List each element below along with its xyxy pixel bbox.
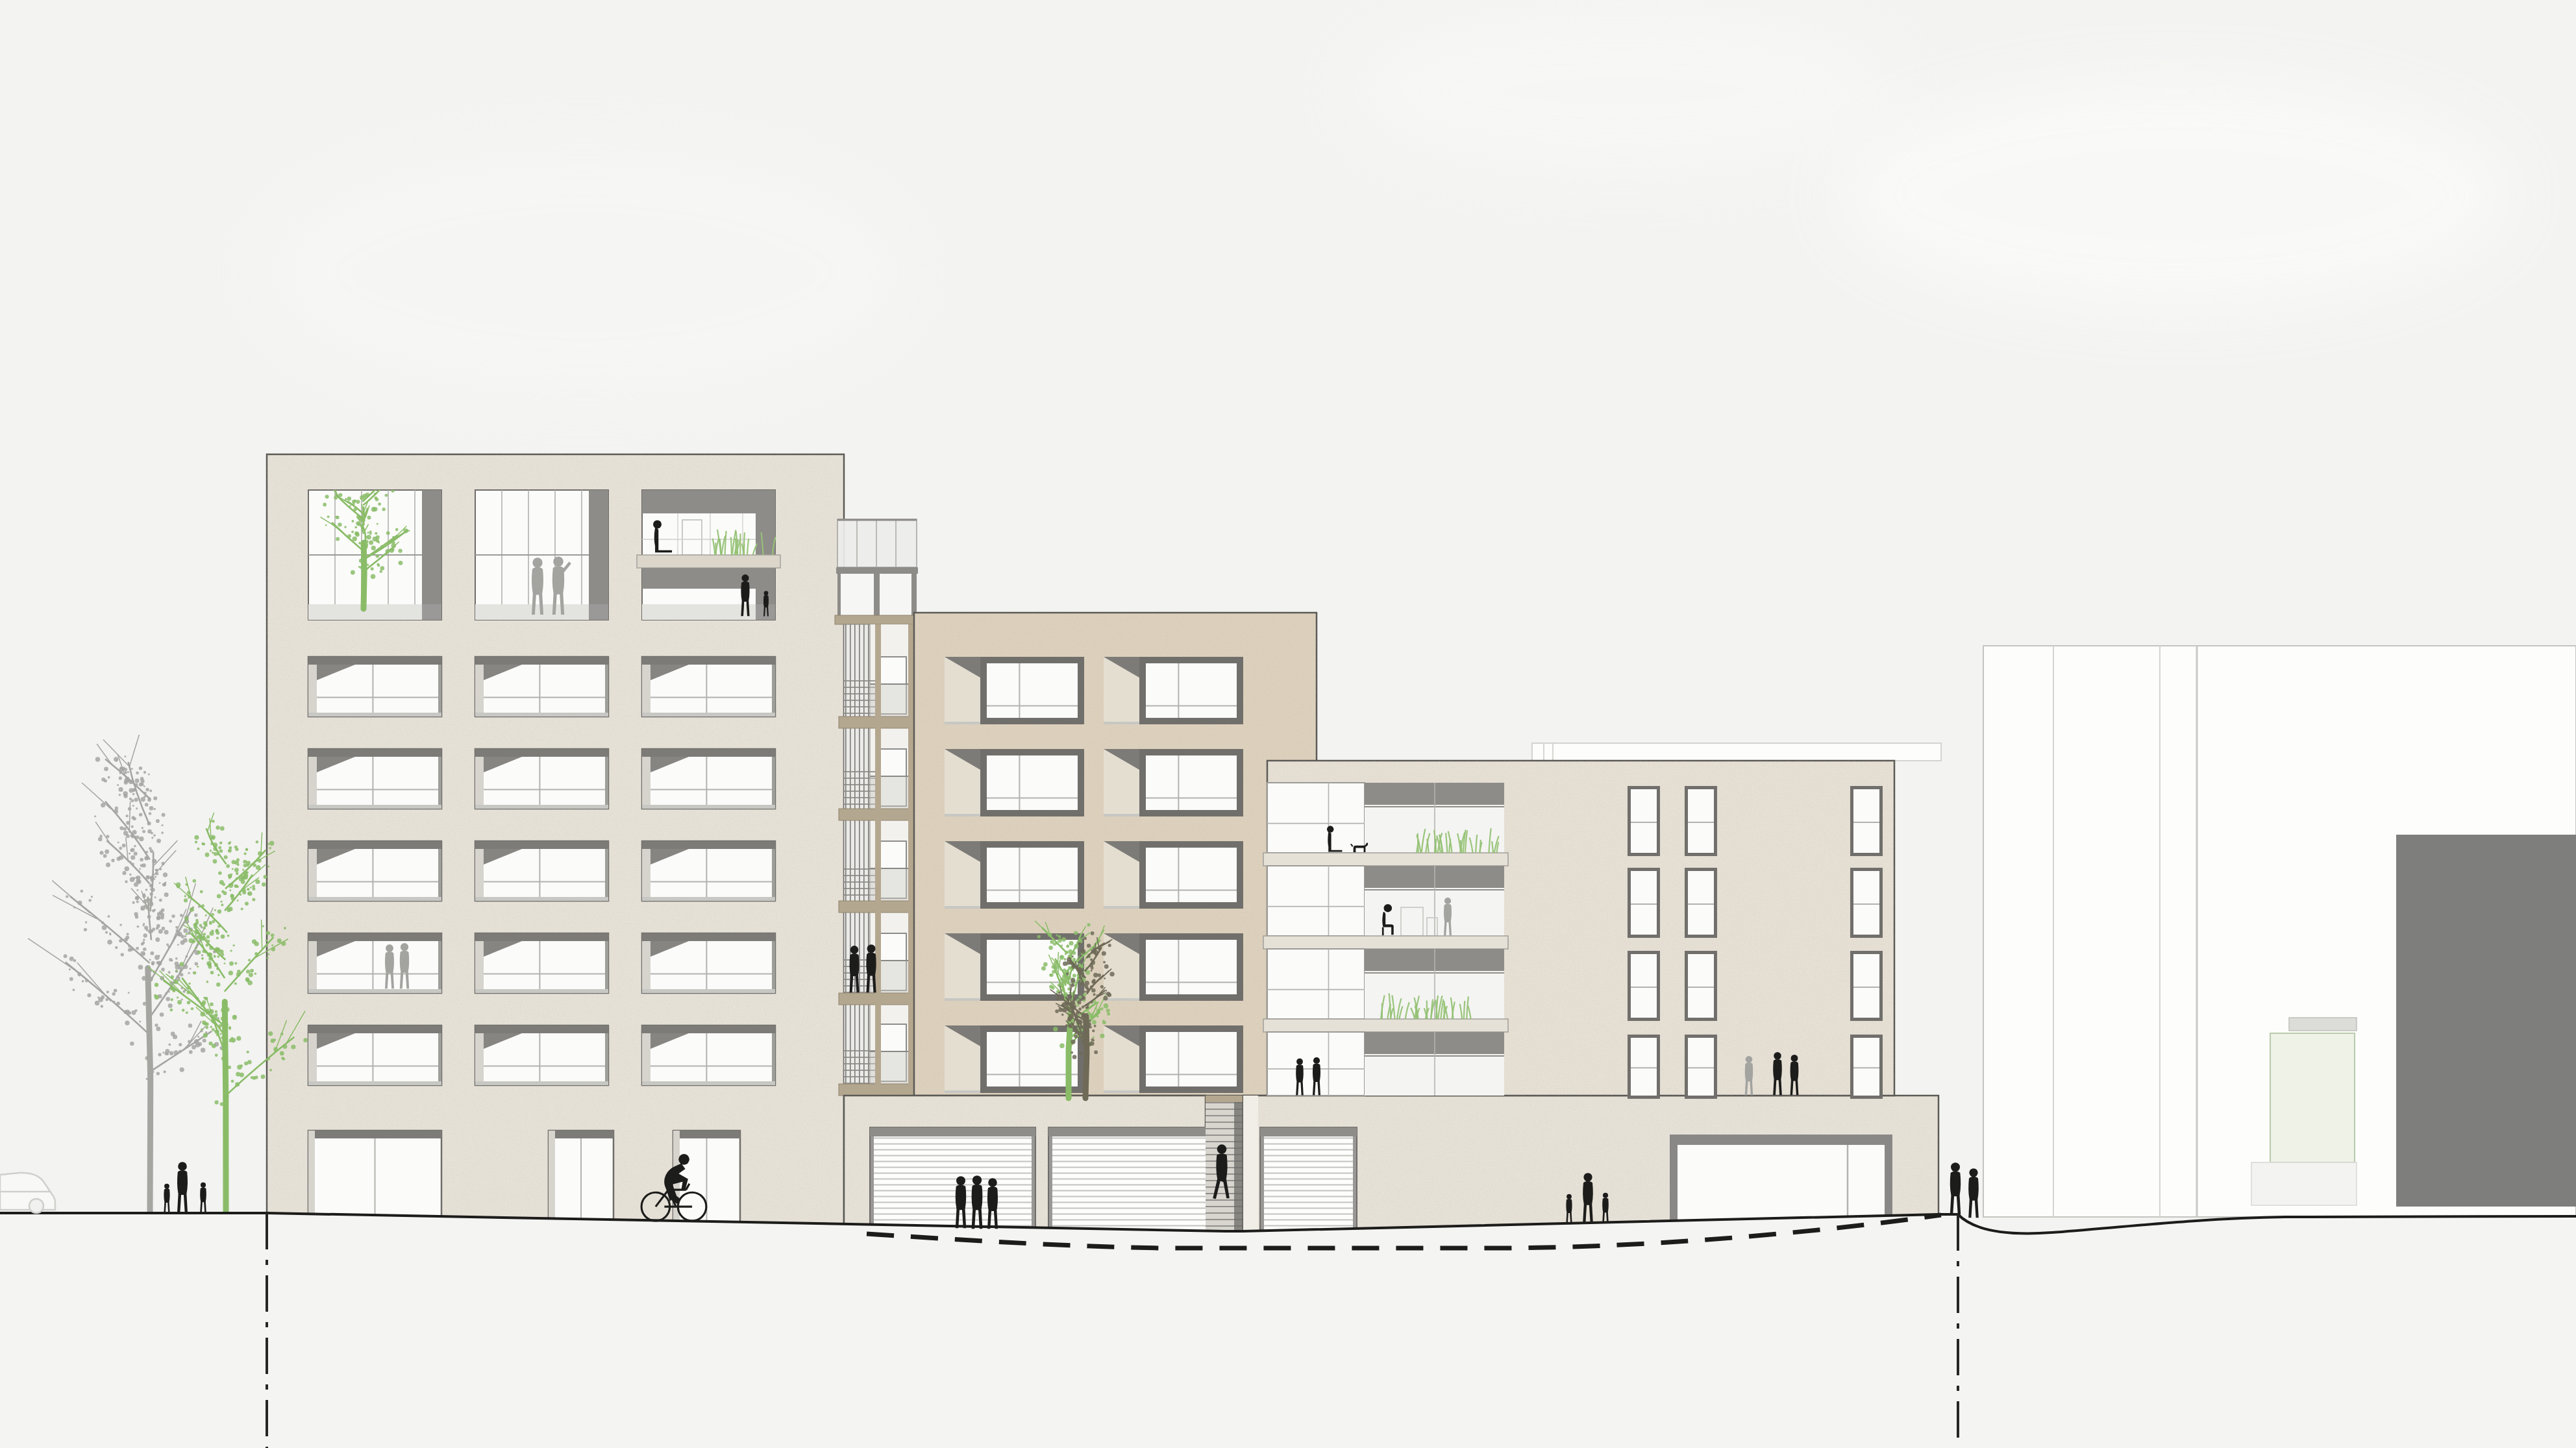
stair-shadow <box>1234 1096 1243 1233</box>
balcony-floor <box>1263 783 1508 866</box>
cloud <box>260 143 909 402</box>
slot-window <box>1685 1035 1717 1099</box>
window <box>945 749 1084 816</box>
window <box>642 933 775 993</box>
background-hall <box>1983 646 2576 1217</box>
window <box>475 841 608 901</box>
storefront-window[interactable] <box>308 1131 441 1225</box>
window <box>308 841 441 901</box>
top-floor-loggias <box>308 490 780 620</box>
tower-column <box>908 624 914 1096</box>
slot-window <box>1628 951 1660 1021</box>
tower-column <box>875 624 881 1096</box>
rear-parapet-band <box>1532 743 1941 761</box>
window <box>1104 749 1243 816</box>
window <box>308 933 441 993</box>
window <box>308 1025 441 1085</box>
slot-window <box>1850 786 1883 856</box>
hall-opening <box>2396 835 2576 1207</box>
window <box>308 749 441 809</box>
podium-left <box>844 1096 1211 1236</box>
slot-window <box>1628 1035 1660 1099</box>
garage-door[interactable] <box>870 1127 1035 1233</box>
slot-window <box>1850 951 1883 1021</box>
cloud <box>1837 78 2512 312</box>
window <box>642 841 775 901</box>
window <box>945 1025 1084 1093</box>
loggia <box>637 490 780 620</box>
window <box>475 933 608 993</box>
garage-door[interactable] <box>1048 1127 1211 1234</box>
window <box>642 749 775 809</box>
slot-window <box>1850 1035 1883 1099</box>
window <box>308 657 441 717</box>
balconies <box>1263 783 1508 1096</box>
window <box>642 1025 775 1085</box>
window <box>945 841 1084 909</box>
elevation-drawing <box>0 0 2576 1448</box>
entrance-door[interactable] <box>549 1131 613 1225</box>
window <box>1104 933 1243 1001</box>
roof-glass-railing <box>837 519 917 567</box>
stair-tower <box>835 519 919 1096</box>
window <box>475 1025 608 1085</box>
garage-door[interactable] <box>1260 1127 1357 1231</box>
elevation-canvas <box>0 0 2576 1448</box>
window <box>945 657 1084 724</box>
canopy <box>2289 1018 2357 1031</box>
roof-slab <box>836 567 918 574</box>
window <box>1104 657 1243 724</box>
window <box>1104 841 1243 909</box>
slot-window <box>1628 786 1660 856</box>
slot-window <box>1628 868 1660 938</box>
window <box>475 657 608 717</box>
building-c <box>1263 761 1894 1099</box>
building-b <box>914 613 1317 1096</box>
podium-return-wall <box>1243 1096 1258 1236</box>
plinth <box>2251 1162 2357 1205</box>
window <box>475 749 608 809</box>
stair-nosing <box>1206 1096 1243 1102</box>
slot-window <box>1685 786 1717 856</box>
slot-window <box>1685 868 1717 938</box>
cloud <box>1350 6 1896 175</box>
balcony-floor <box>1263 949 1508 1032</box>
tower-top-slab <box>835 615 919 624</box>
glazed-green-box <box>2270 1033 2355 1162</box>
slot-window <box>1685 951 1717 1021</box>
window <box>1104 1025 1243 1093</box>
window <box>642 657 775 717</box>
slot-window <box>1850 868 1883 938</box>
